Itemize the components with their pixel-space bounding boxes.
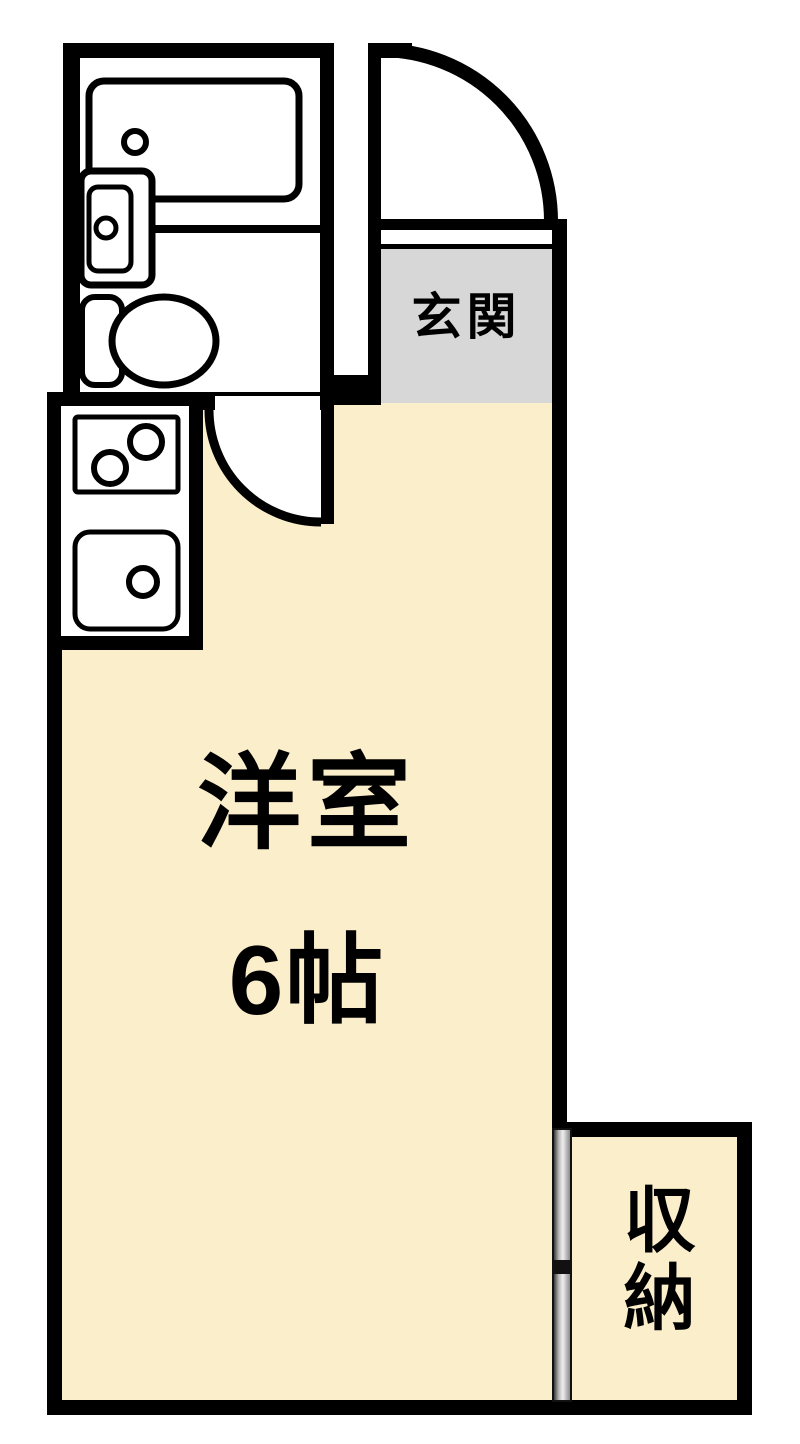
stove: [75, 417, 178, 492]
entrance-door-arc: [380, 50, 551, 221]
bathtub-drain: [124, 131, 146, 153]
kitchen-sink-drain: [129, 568, 157, 596]
entrance-label: 玄関: [381, 285, 552, 349]
stove-burner-left: [94, 452, 126, 484]
stove-burner-right: [130, 426, 162, 458]
bathroom-sink-drain: [96, 218, 116, 238]
bathroom-door-leaf: [321, 410, 334, 524]
main-room-label: 洋室: [62, 748, 552, 860]
main-room-size-label: 6帖: [62, 926, 552, 1034]
toilet-bowl: [112, 297, 216, 385]
storage-label: 収納: [567, 1182, 737, 1372]
floor-plan: 玄関 洋室 6帖 収納: [0, 0, 800, 1444]
